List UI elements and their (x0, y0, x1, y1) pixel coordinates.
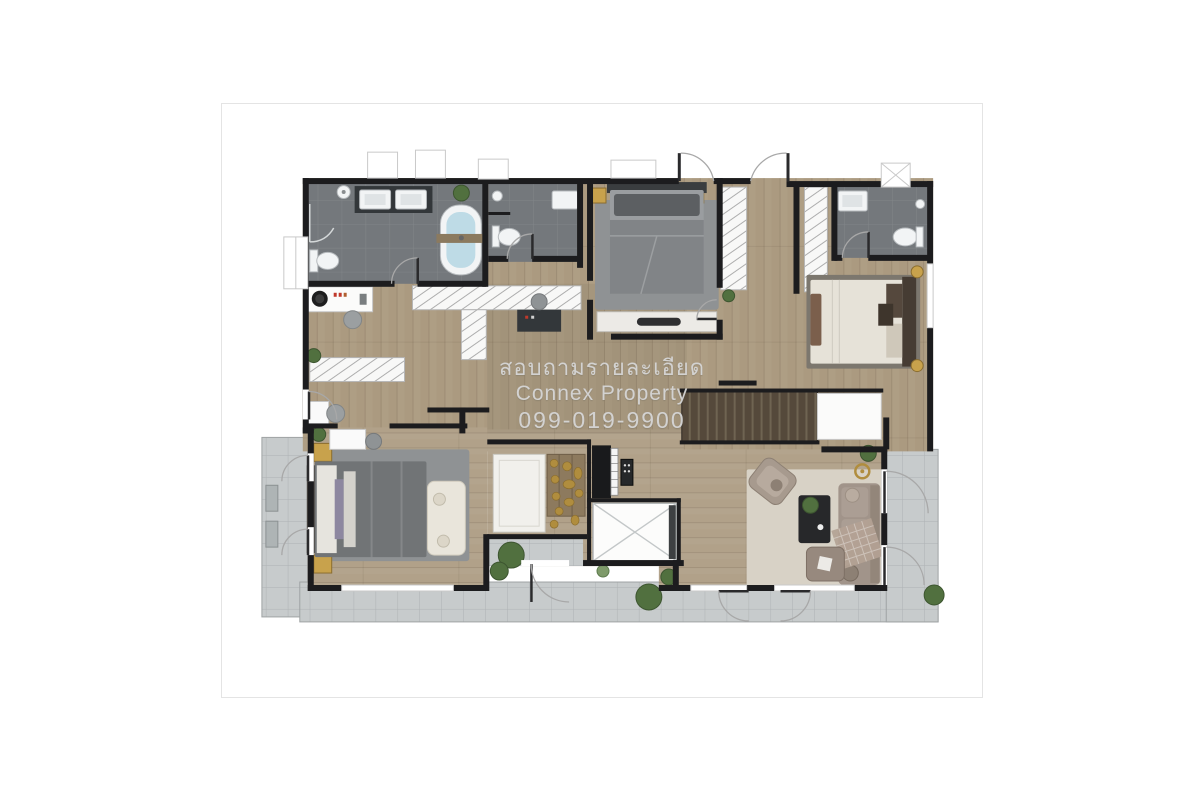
door-leaf (867, 232, 869, 258)
nightstand-lamp (314, 443, 332, 461)
floor-plan-drawing (222, 104, 980, 695)
chair (366, 433, 382, 449)
wall-bed2-right-a (717, 178, 723, 288)
piano-body (592, 445, 611, 498)
potted-plant (453, 185, 469, 201)
door-leaf (781, 590, 811, 592)
roof-window-2 (415, 150, 445, 178)
shower-stub-wall (488, 212, 510, 215)
wall-dressing-stub-h (427, 407, 489, 412)
wall-void-right (677, 498, 681, 564)
headboard (902, 277, 916, 367)
foot-bench (810, 294, 821, 346)
door-leaf (307, 455, 309, 481)
wardrobe-hall-left (721, 187, 747, 290)
wall-bed2-bottom (611, 334, 723, 340)
white-rug (493, 454, 545, 532)
stair-landing (817, 394, 881, 440)
door-leaf (308, 392, 310, 420)
wall-void-left (587, 498, 591, 564)
sink-bowl (842, 195, 862, 207)
cosmetics (339, 293, 342, 297)
gold-statue (574, 467, 582, 479)
wall-bath2-bottom-a (488, 256, 508, 262)
wall-bath2-bottom-b (532, 256, 579, 262)
wall-mbath-bottom-b (417, 281, 486, 287)
gold-statue (571, 515, 579, 525)
wall-bath3-bottom-a (834, 255, 842, 261)
desk (308, 401, 329, 425)
staircase (680, 381, 883, 445)
condenser-unit (266, 521, 278, 547)
bush (636, 584, 662, 610)
door-arc-top-2 (751, 153, 787, 181)
wall-shrine-bottom (487, 534, 587, 539)
door-leaf (787, 153, 790, 181)
closet-strip (412, 286, 581, 310)
door-leaf (697, 318, 717, 320)
opening-mid-bottom (521, 560, 569, 566)
wall-shrine-top (487, 439, 591, 444)
lamp (911, 266, 923, 278)
pillows (317, 465, 337, 553)
gold-statue (550, 459, 558, 467)
pillow-row (344, 471, 356, 547)
wall-bath3-left (831, 186, 837, 261)
sink-bowl (365, 194, 386, 205)
gold-statue (551, 475, 559, 483)
loveseat-pillow (433, 493, 445, 505)
gold-statue (552, 492, 560, 500)
door-leaf (719, 590, 749, 592)
pillows (614, 194, 700, 216)
sofa-pillow (845, 488, 859, 502)
wall-bed2-left-a (587, 181, 593, 281)
wall-master-left (308, 427, 314, 591)
wall-landing-right (883, 417, 889, 449)
wall-bed2-right-b (717, 320, 723, 340)
sink-basin (552, 191, 578, 209)
nightstand-lamp (314, 555, 332, 573)
roof-window-4 (611, 160, 656, 178)
synth-knob (628, 464, 630, 466)
window-right (927, 264, 933, 328)
wall-top-2 (787, 181, 934, 187)
wall-bath2-right (577, 181, 583, 268)
toilet-tank (916, 227, 923, 247)
cosmetics (344, 293, 347, 297)
bath-faucet (459, 235, 464, 240)
door-arc-top-1 (681, 153, 714, 181)
wall-living-top (821, 446, 887, 452)
hall-desk (517, 310, 561, 332)
gold-statue (563, 462, 572, 471)
wall-mbed-top-b (390, 423, 468, 428)
door-leaf (883, 547, 885, 585)
stair-rail-top (680, 389, 883, 393)
wall-bath-divider (482, 181, 488, 287)
duvet (610, 220, 704, 294)
stair-flight (682, 392, 818, 442)
synthesizer (621, 459, 633, 485)
window-master-bottom (342, 585, 454, 591)
wall-piano-back (587, 439, 591, 499)
wall-mid-bottom (583, 560, 684, 566)
synth-knob (624, 464, 626, 466)
pillow (886, 324, 902, 358)
bush (924, 585, 944, 605)
closet-vertical (461, 310, 486, 360)
floor-plan-image: สอบถามรายละเอียด Connex Property 099-019… (221, 103, 983, 698)
gold-statue (550, 520, 558, 528)
void-shaft (593, 503, 677, 561)
table-plant (802, 497, 818, 513)
door-leaf (678, 153, 681, 181)
throw-pillow (771, 479, 783, 491)
wall-bed3-left (793, 186, 799, 294)
vanity-item (360, 294, 367, 305)
vanity-desk (330, 429, 366, 449)
cosmetics (334, 293, 337, 297)
cup (817, 524, 823, 530)
desk-item (531, 316, 534, 319)
wall-dressing-stub-v (459, 407, 465, 433)
gold-statue (555, 507, 563, 515)
toilet-bowl (893, 228, 917, 246)
wall-mbath-bottom-a (305, 281, 395, 287)
roof-window-3 (478, 159, 508, 179)
wall-mbed-top-a (308, 423, 338, 428)
roof-window-1 (368, 152, 398, 178)
gold-statue (575, 489, 583, 497)
floor-plan-page: สอบถามรายละเอียด Connex Property 099-019… (0, 0, 1200, 800)
sink-bowl (401, 194, 422, 205)
stair-wall-stub (719, 381, 757, 386)
bush (490, 562, 508, 580)
lamp-center (860, 469, 864, 473)
door-leaf (531, 234, 533, 259)
condenser-unit (266, 485, 278, 511)
mirror-inner (315, 294, 324, 303)
bedroom-3 (806, 266, 923, 372)
toilet-bowl (317, 252, 339, 269)
door-leaf (416, 258, 418, 284)
small-basin (492, 191, 502, 201)
wall-void-top (587, 498, 681, 502)
lamp (911, 360, 923, 372)
synth-knob (628, 470, 630, 472)
closet-dressing (310, 358, 405, 382)
toilet-bowl (498, 228, 520, 245)
potted-plant (312, 427, 326, 441)
gold-statue (563, 480, 575, 489)
wall-bath3-bottom-b (868, 255, 930, 261)
loveseat-pillow (437, 535, 449, 547)
small-plant (723, 290, 735, 302)
chair (531, 294, 547, 310)
shrine-room (493, 454, 585, 532)
door-leaf (883, 471, 885, 513)
dresser-tray (637, 318, 681, 326)
wall-basin (916, 200, 925, 209)
synth-knob (624, 470, 626, 472)
stair-rail-bottom (680, 440, 820, 444)
desk-item (525, 316, 528, 319)
wall-bed2-left-b (587, 300, 593, 340)
wall-shrine-left (483, 534, 489, 591)
door-leaf (307, 529, 309, 555)
accent-pillow (335, 479, 344, 539)
flower-pot (597, 565, 609, 577)
accent-pillow (878, 304, 893, 326)
gold-statue (564, 498, 574, 506)
potted-plant (307, 349, 321, 363)
nightstand-lamp (591, 188, 606, 203)
basin-drain (342, 190, 346, 194)
paper (817, 556, 832, 571)
console-cabinet (669, 505, 676, 559)
stool (344, 311, 362, 329)
